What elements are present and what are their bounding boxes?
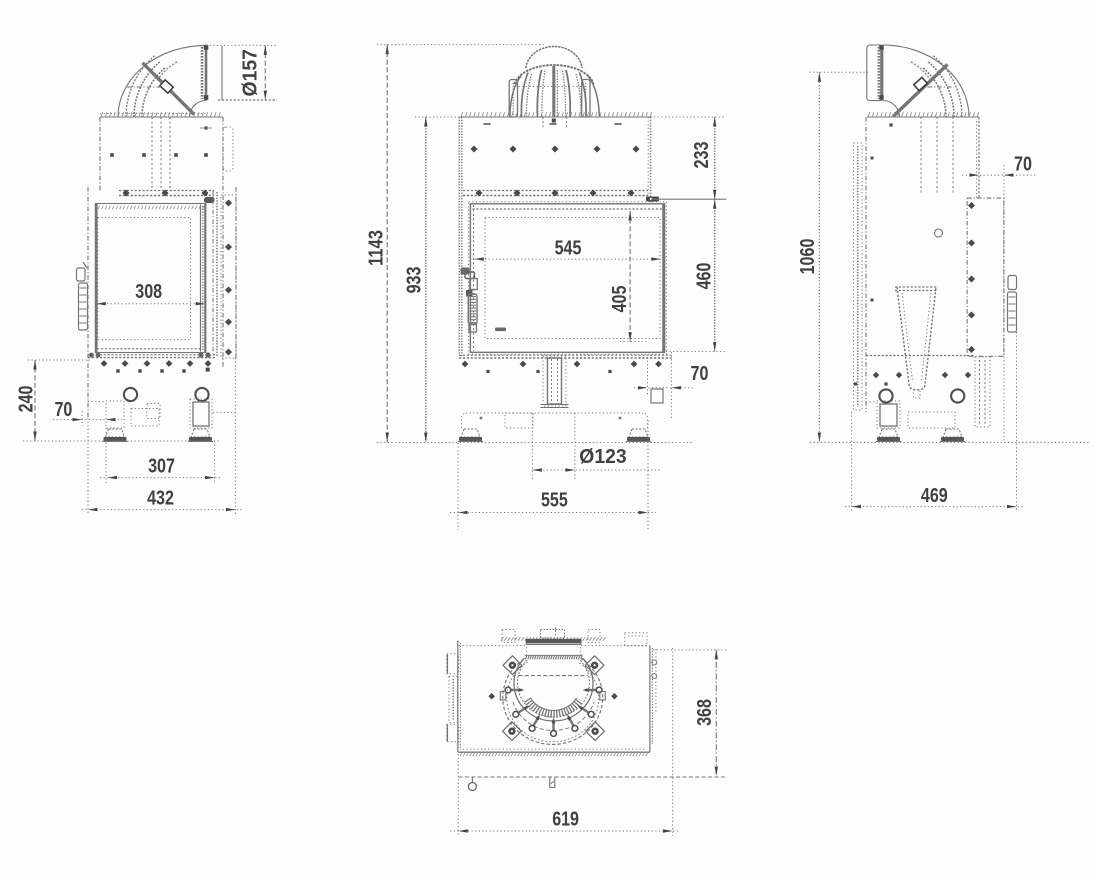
svg-text:469: 469 — [921, 485, 948, 507]
svg-text:240: 240 — [16, 386, 38, 413]
svg-text:Ø157: Ø157 — [240, 49, 262, 96]
svg-text:308: 308 — [135, 281, 162, 303]
svg-text:Ø123: Ø123 — [579, 446, 626, 468]
svg-text:1143: 1143 — [366, 230, 388, 266]
svg-text:619: 619 — [552, 809, 579, 831]
svg-text:70: 70 — [691, 363, 709, 385]
svg-text:368: 368 — [694, 699, 716, 726]
svg-text:460: 460 — [693, 263, 715, 290]
svg-text:70: 70 — [1014, 153, 1032, 175]
svg-text:1060: 1060 — [797, 239, 819, 275]
svg-text:933: 933 — [404, 267, 426, 294]
svg-text:307: 307 — [148, 456, 175, 478]
svg-text:233: 233 — [691, 142, 713, 169]
svg-text:405: 405 — [609, 286, 631, 313]
svg-text:545: 545 — [555, 237, 582, 259]
svg-text:555: 555 — [541, 489, 568, 511]
svg-text:70: 70 — [54, 399, 72, 421]
svg-text:432: 432 — [147, 488, 174, 510]
